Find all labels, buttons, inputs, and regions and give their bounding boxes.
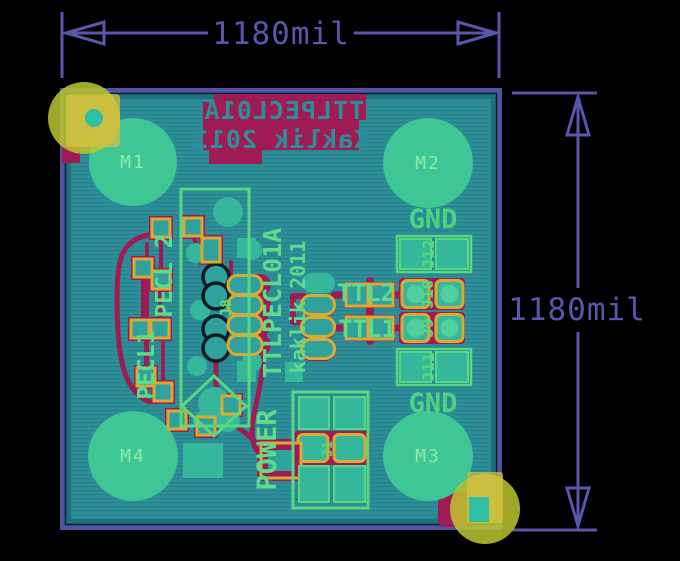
power-label: POWER (252, 409, 283, 491)
silkscreen-title-block: TTLPECL01A Kaklik 2011 (193, 94, 370, 164)
refdes-j10: J10 (418, 280, 437, 309)
refdes-j12: J12 (419, 240, 438, 269)
ttl1-label: TTL1 (338, 315, 396, 343)
silkscreen-line1: TTLPECL01A (204, 96, 365, 125)
board: TTLPECL01A Kaklik 2011 (62, 90, 500, 528)
mount-hole-m3-label: M3 (415, 446, 441, 467)
mount-hole-m1-label: M1 (120, 152, 146, 173)
gnd-top-label: GND (409, 204, 458, 235)
copper-text-author: kaklik 2011 (286, 241, 310, 373)
refdes-j11: J11 (419, 353, 438, 382)
ttl2-label: TTL2 (337, 279, 395, 307)
dimension-top-label: 1180mil (212, 16, 350, 52)
gnd-bottom-label: GND (409, 388, 458, 419)
dimension-right-label: 1180mil (508, 292, 646, 328)
mount-hole-m4-label: M4 (120, 446, 146, 467)
copper-text-name: TTLPECL01A (258, 228, 287, 379)
pcb-viewer-canvas: 1180mil 1180mil TTLPECL01A Kaklik 2011 (0, 0, 680, 561)
refdes-j9: J9 (418, 318, 437, 337)
mount-hole-m2-label: M2 (415, 153, 441, 174)
pecl1-label: PECL1 (134, 330, 160, 399)
pcb-render: 1180mil 1180mil TTLPECL01A Kaklik 2011 (0, 0, 680, 561)
fiducial-dot (85, 109, 103, 127)
pecl2-label: PECL 2 (152, 234, 178, 317)
refdes-j1: J1 (321, 441, 336, 457)
corner-marker-top-left (48, 82, 120, 154)
fiducial-pad (469, 497, 489, 522)
silkscreen-line2: Kaklik 2011 (193, 125, 370, 154)
refdes-j8: J8 (217, 299, 235, 317)
